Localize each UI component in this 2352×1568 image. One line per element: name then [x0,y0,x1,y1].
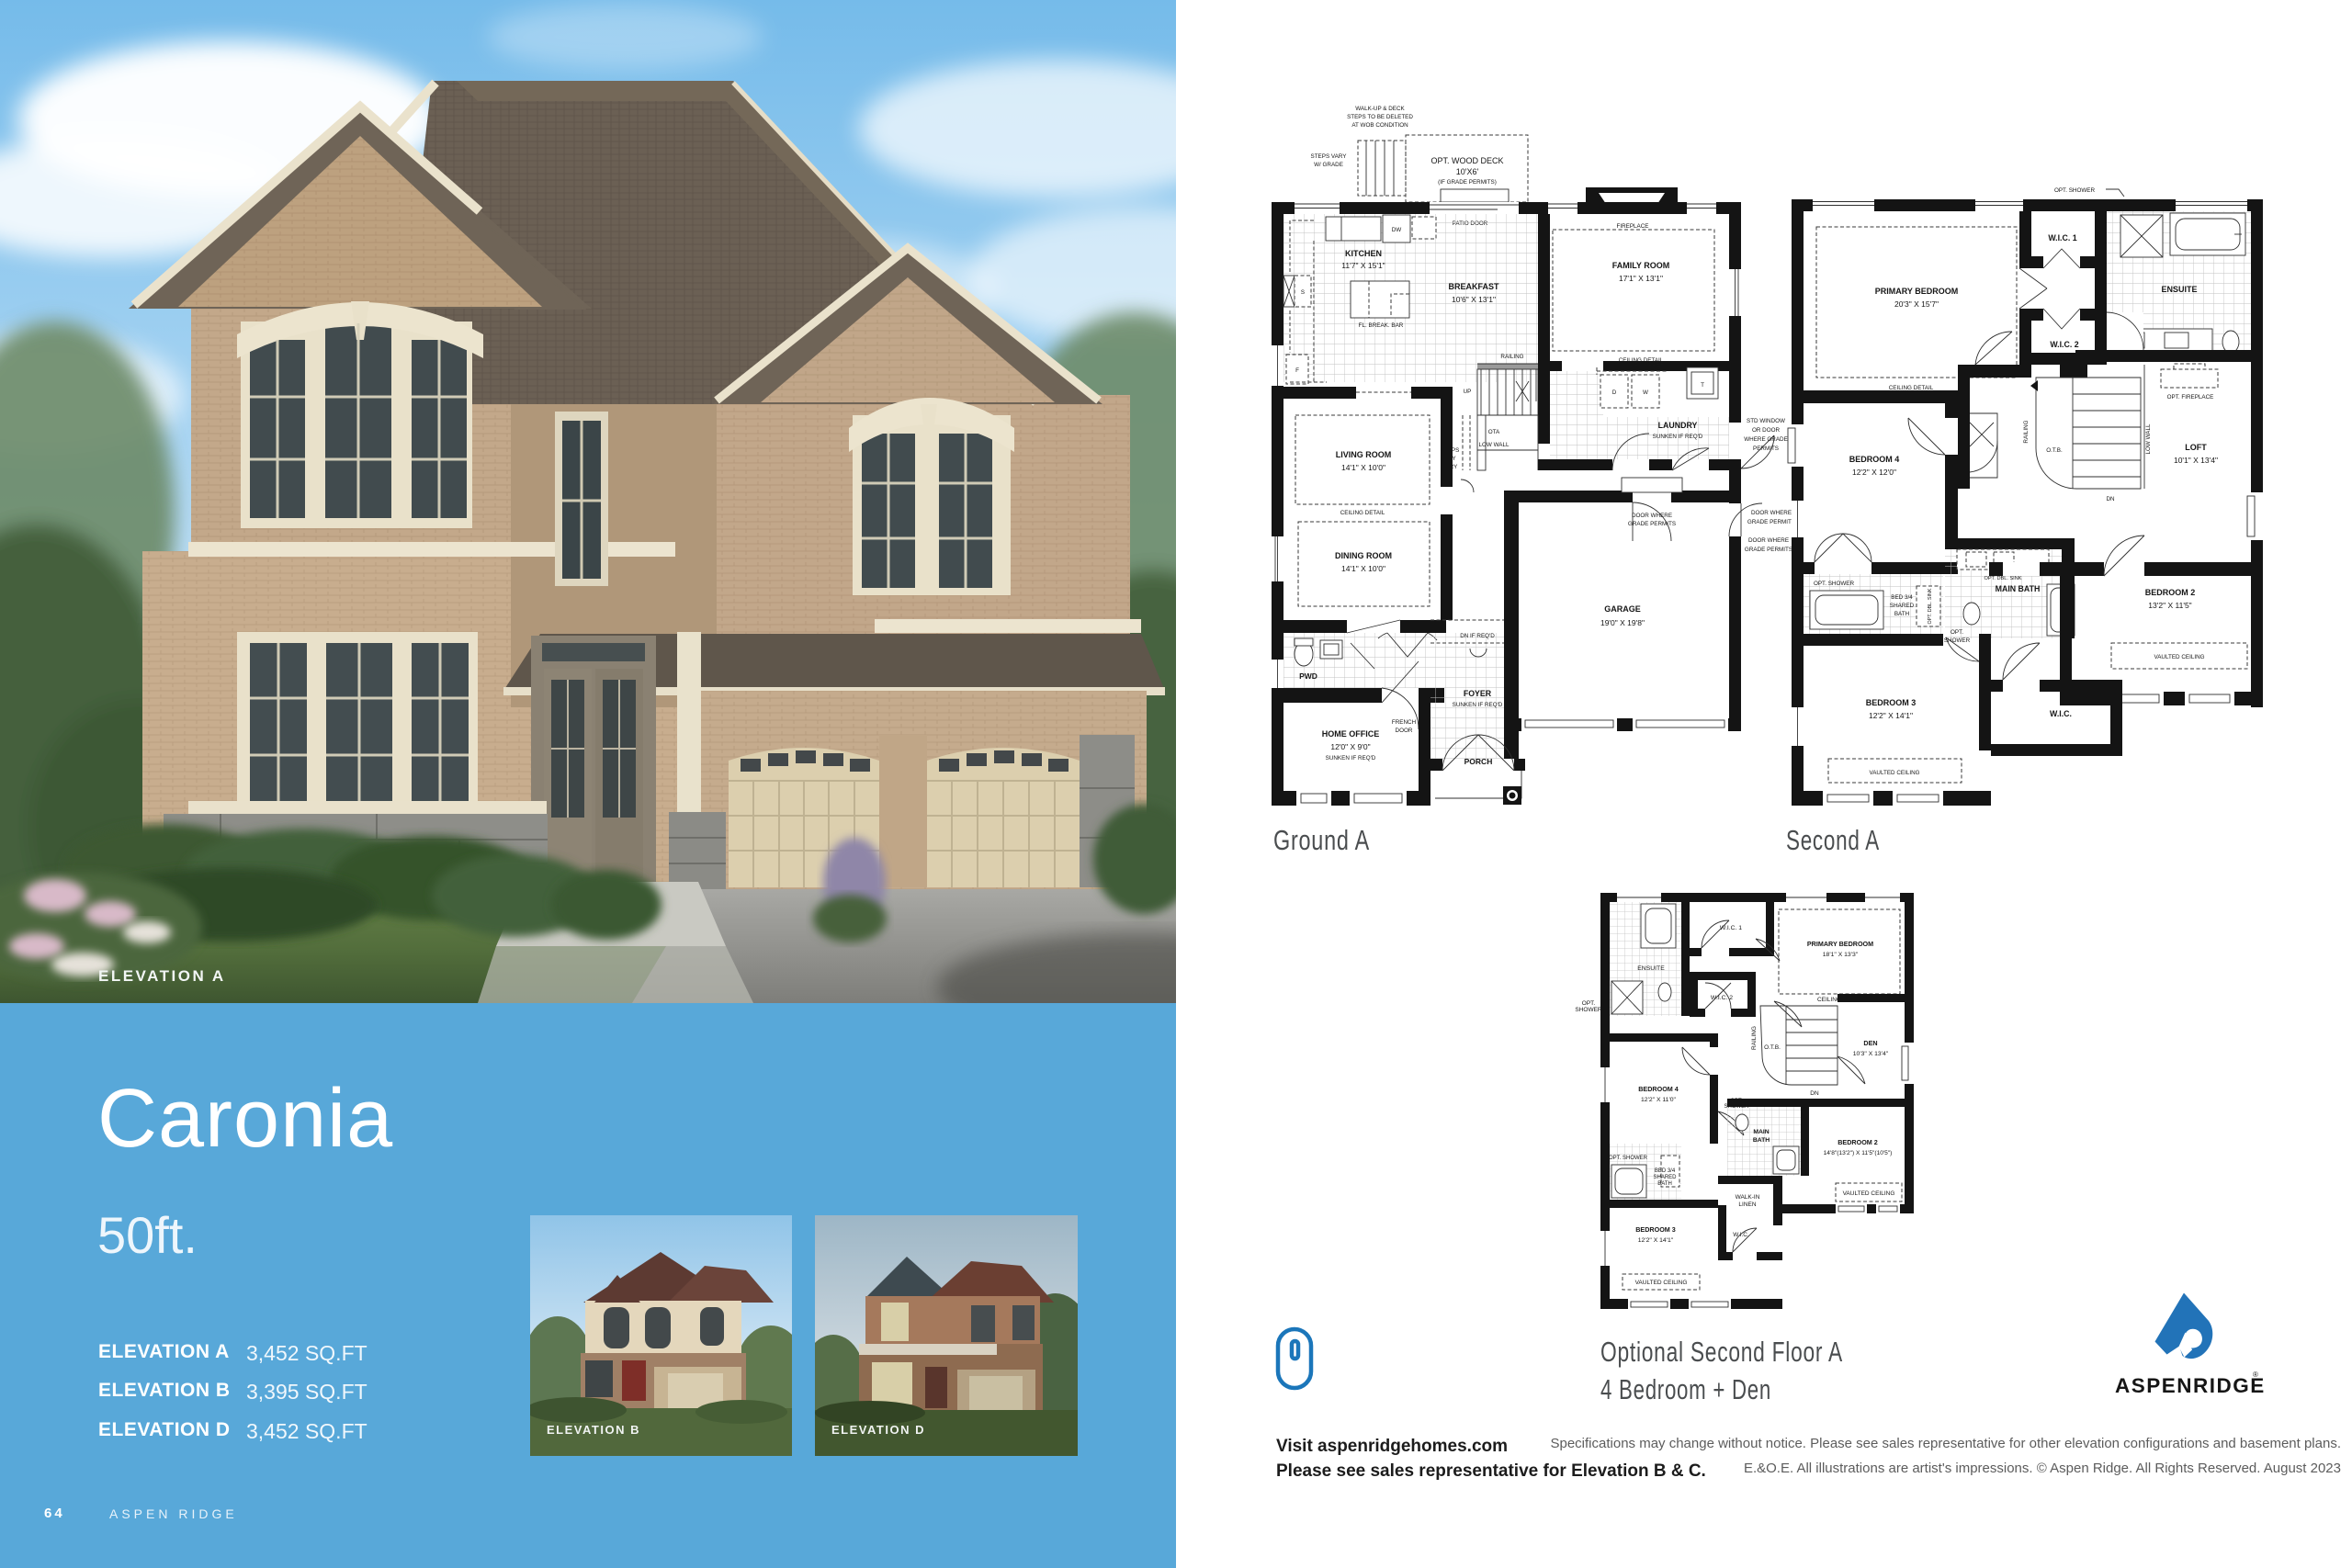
svg-text:DN: DN [2106,496,2115,502]
svg-text:FIREPLACE: FIREPLACE [1617,223,1649,230]
svg-text:SUNKEN IF REQ'D: SUNKEN IF REQ'D [1453,702,1503,708]
svg-text:LOFT: LOFT [2185,443,2207,452]
svg-text:STEPS TO BE DELETED: STEPS TO BE DELETED [1347,114,1413,120]
svg-text:OTA: OTA [1488,429,1500,435]
svg-text:12'2" X 12'0": 12'2" X 12'0" [1852,468,1896,477]
svg-text:11'7" X 15'1": 11'7" X 15'1" [1341,261,1385,270]
svg-text:PWD: PWD [1299,671,1317,681]
svg-text:W.I.C.: W.I.C. [2050,709,2072,718]
svg-text:DOOR WHERE: DOOR WHERE [1748,537,1789,544]
svg-text:®: ® [2253,1371,2258,1379]
svg-text:OPT. SHOWER: OPT. SHOWER [1609,1156,1648,1161]
svg-text:14'8"(13'2") X 11'5"(10'5"): 14'8"(13'2") X 11'5"(10'5") [1824,1150,1893,1156]
svg-text:OPT. WOOD DECK: OPT. WOOD DECK [1430,156,1503,165]
svg-text:STD WINDOW: STD WINDOW [1747,418,1785,424]
svg-text:MAIN BATH: MAIN BATH [1996,584,2041,593]
svg-text:SHOWER: SHOWER [1575,1007,1602,1013]
svg-text:SHARED: SHARED [1890,603,1915,609]
svg-text:PERMITS: PERMITS [1753,446,1779,452]
svg-text:12'0" X 9'0": 12'0" X 9'0" [1330,742,1370,751]
svg-text:12'2" X 14'1": 12'2" X 14'1" [1869,711,1913,720]
svg-text:GRADE PERMITS: GRADE PERMITS [1747,519,1795,525]
svg-text:OPT.: OPT. [1951,629,1963,636]
svg-text:20'3" X 15'7": 20'3" X 15'7" [1894,299,1939,309]
svg-text:FOYER: FOYER [1464,689,1492,698]
svg-text:14'1" X 10'0": 14'1" X 10'0" [1341,463,1385,472]
svg-text:PRIMARY BEDROOM: PRIMARY BEDROOM [1875,287,1959,296]
svg-text:FAMILY ROOM: FAMILY ROOM [1612,261,1670,270]
svg-text:Visit aspenridgehomes.com: Visit aspenridgehomes.com [1276,1437,1508,1456]
svg-text:O.T.B.: O.T.B. [1764,1044,1781,1051]
svg-text:STEPS VARY: STEPS VARY [1311,153,1348,160]
svg-text:CEILING DETAIL: CEILING DETAIL [1340,510,1385,516]
svg-text:WHERE GRADE: WHERE GRADE [1744,436,1788,443]
svg-text:ASPENRIDGE: ASPENRIDGE [2115,1374,2266,1397]
svg-text:Optional Second Floor A: Optional Second Floor A [1600,1336,1843,1368]
svg-text:10'X6': 10'X6' [1456,167,1479,176]
svg-text:DN IF REQ'D: DN IF REQ'D [1460,633,1495,639]
svg-text:12'2" X 14'1": 12'2" X 14'1" [1638,1237,1674,1244]
svg-text:BEDROOM 2: BEDROOM 2 [2145,588,2196,597]
svg-text:CEILING DETAIL: CEILING DETAIL [1889,385,1934,391]
svg-text:BATH: BATH [1657,1181,1672,1187]
svg-text:DW: DW [1392,227,1402,233]
svg-text:Second A: Second A [1786,824,1880,856]
svg-text:T: T [1701,382,1704,389]
svg-text:BEDROOM 2: BEDROOM 2 [1837,1138,1878,1146]
svg-text:Please see sales representativ: Please see sales representative for Elev… [1276,1461,1706,1481]
svg-text:AT WOB CONDITION: AT WOB CONDITION [1351,122,1408,129]
svg-text:RAILING: RAILING [1751,1026,1758,1050]
svg-text:E.&O.E. All illustrations are: E.&O.E. All illustrations are artist's i… [1744,1461,2341,1476]
svg-text:BEDROOM 4: BEDROOM 4 [1638,1085,1679,1093]
svg-text:SHOWER: SHOWER [1724,1104,1750,1110]
svg-text:W/ GRADE: W/ GRADE [1314,162,1343,168]
svg-text:DN: DN [1810,1090,1819,1097]
svg-text:DOOR WHERE: DOOR WHERE [1751,510,1792,516]
svg-text:LINEN: LINEN [1738,1201,1756,1208]
svg-text:OPT. DBL. SINK: OPT. DBL. SINK [1928,588,1933,624]
svg-text:17'1" X 13'1": 17'1" X 13'1" [1619,274,1663,283]
svg-text:PRIMARY BEDROOM: PRIMARY BEDROOM [1807,940,1873,948]
svg-text:ELEVATION D: ELEVATION D [831,1423,925,1437]
svg-text:GRADE PERMITS: GRADE PERMITS [1745,547,1792,553]
svg-text:ENSUITE: ENSUITE [1637,965,1665,972]
svg-text:FL. BREAK. BAR: FL. BREAK. BAR [1359,322,1404,329]
svg-text:OPT.: OPT. [1582,1000,1596,1007]
svg-text:BREAKFAST: BREAKFAST [1448,282,1499,291]
svg-text:BEDROOM 4: BEDROOM 4 [1849,455,1900,464]
svg-text:DINING ROOM: DINING ROOM [1335,551,1392,560]
svg-text:MAIN: MAIN [1753,1129,1769,1135]
svg-text:WALK-IN: WALK-IN [1736,1194,1760,1201]
svg-text:W.I.C. 2: W.I.C. 2 [2050,340,2078,349]
svg-text:BEDROOM 3: BEDROOM 3 [1635,1225,1676,1234]
svg-text:ELEVATION B: ELEVATION B [547,1423,640,1437]
svg-text:KITCHEN: KITCHEN [1345,249,1382,258]
svg-text:BEDROOM 3: BEDROOM 3 [1866,698,1917,707]
svg-text:SUNKEN IF REQ'D: SUNKEN IF REQ'D [1653,434,1703,440]
svg-text:10'1" X 13'4": 10'1" X 13'4" [2174,456,2218,465]
svg-text:RAILING: RAILING [1500,354,1523,360]
svg-text:VAULTED CEILING: VAULTED CEILING [1635,1280,1688,1286]
svg-text:VAULTED CEILING: VAULTED CEILING [1869,770,1919,776]
svg-text:4 Bedroom + Den: 4 Bedroom + Den [1600,1373,1771,1405]
svg-text:D: D [1612,389,1617,396]
svg-text:SHARED: SHARED [1653,1175,1677,1180]
svg-text:LOW WALL: LOW WALL [2145,423,2152,455]
svg-text:19'0" X 19'8": 19'0" X 19'8" [1600,618,1645,627]
svg-text:OPT. SHOWER: OPT. SHOWER [2054,187,2096,194]
svg-text:SUNKEN IF REQ'D: SUNKEN IF REQ'D [1326,755,1376,761]
svg-text:BED 3/4: BED 3/4 [1655,1168,1676,1174]
svg-text:LIVING ROOM: LIVING ROOM [1336,450,1392,459]
svg-text:10'6" X 13'1": 10'6" X 13'1" [1452,295,1496,304]
svg-text:W.I.C.: W.I.C. [1733,1232,1749,1238]
svg-text:ENSUITE: ENSUITE [2161,285,2197,294]
svg-text:14'1" X 10'0": 14'1" X 10'0" [1341,564,1385,573]
svg-text:PORCH: PORCH [1464,757,1493,766]
svg-text:DEN: DEN [1863,1039,1877,1047]
svg-text:DOOR: DOOR [1396,728,1413,734]
svg-text:OPT. UPPERS: OPT. UPPERS [1630,362,1668,368]
svg-text:RAILING: RAILING [2023,420,2030,443]
svg-text:GRADE PERMITS: GRADE PERMITS [1628,521,1676,527]
svg-text:10'3" X 13'4": 10'3" X 13'4" [1853,1051,1889,1057]
svg-text:13'2" X 11'5": 13'2" X 11'5" [2148,601,2191,610]
svg-text:W: W [1643,389,1648,396]
svg-text:BATH: BATH [1753,1137,1770,1144]
svg-text:(IF GRADE PERMITS): (IF GRADE PERMITS) [1438,179,1497,186]
svg-text:OPT. FIREPLACE: OPT. FIREPLACE [2167,394,2214,400]
svg-text:ELEVATION A: ELEVATION A [98,967,226,985]
svg-text:F: F [1295,367,1299,374]
svg-text:OPT. DBL. SINK: OPT. DBL. SINK [1984,576,2021,581]
svg-text:S: S [1301,289,1305,296]
svg-text:LAUNDRY: LAUNDRY [1658,421,1698,430]
svg-text:WALK-UP & DECK: WALK-UP & DECK [1355,106,1405,112]
svg-text:VAULTED CEILING: VAULTED CEILING [2154,654,2204,660]
svg-text:12'2" X 11'0": 12'2" X 11'0" [1641,1097,1676,1103]
svg-text:OR DOOR: OR DOOR [1752,427,1781,434]
svg-text:W.I.C. 1: W.I.C. 1 [2048,233,2076,243]
svg-text:18'1" X 13'3": 18'1" X 13'3" [1823,952,1859,958]
svg-text:LOW WALL: LOW WALL [1478,442,1510,448]
svg-text:UP: UP [1464,389,1472,395]
svg-text:HOME OFFICE: HOME OFFICE [1322,729,1380,739]
svg-text:BATH: BATH [1894,611,1910,617]
svg-text:OPT. SHOWER: OPT. SHOWER [1814,581,1855,587]
svg-text:DOOR WHERE: DOOR WHERE [1632,513,1672,519]
svg-text:Ground A: Ground A [1273,824,1370,856]
svg-text:FRENCH: FRENCH [1392,719,1417,726]
svg-text:Specifications may change with: Specifications may change without notice… [1550,1436,2341,1451]
svg-text:O.T.B.: O.T.B. [2046,447,2063,454]
svg-text:VAULTED CEILING: VAULTED CEILING [1843,1190,1895,1197]
svg-text:BED 3/4: BED 3/4 [1891,594,1913,601]
svg-text:GARAGE: GARAGE [1604,604,1641,614]
